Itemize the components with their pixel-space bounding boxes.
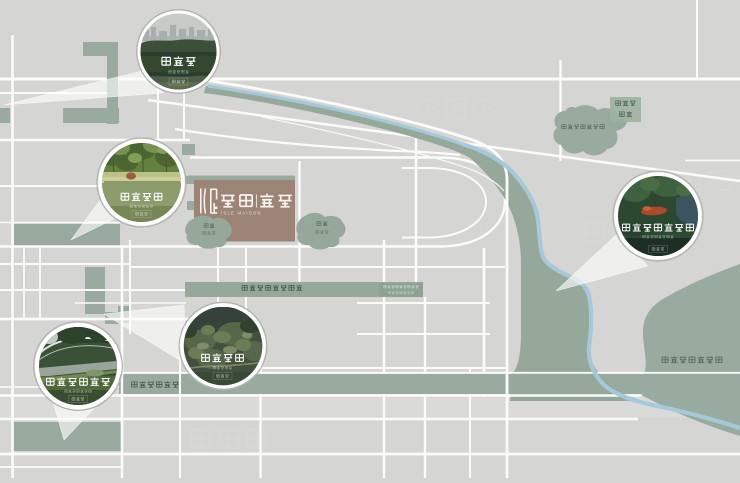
svg-text:ISLE MAISON: ISLE MAISON <box>221 211 262 216</box>
